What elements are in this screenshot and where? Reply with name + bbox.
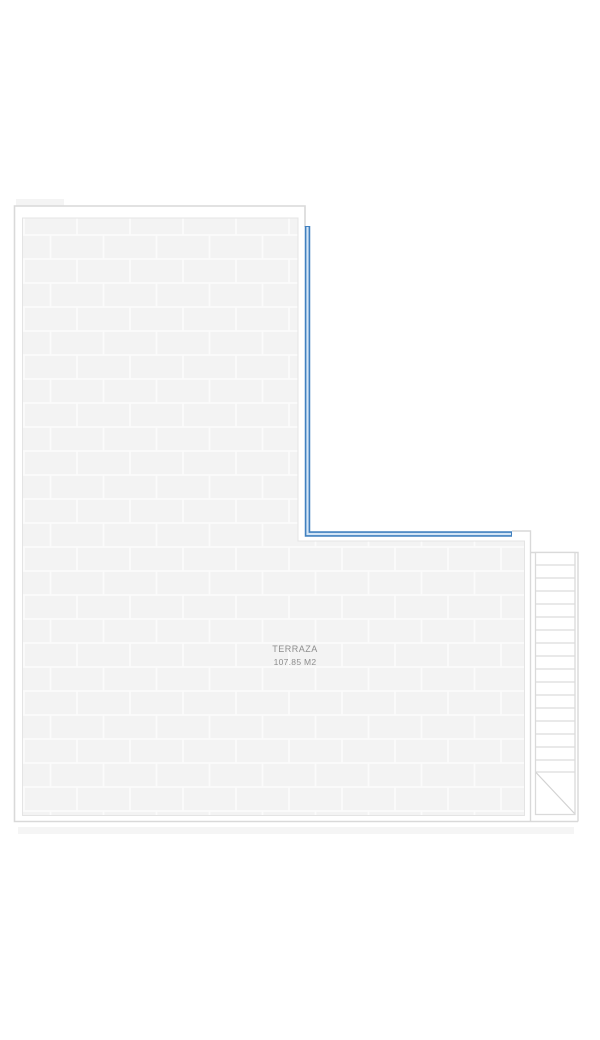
room-name-label: TERRAZA [272, 644, 318, 654]
staircase [536, 553, 576, 815]
floor-plan-canvas: TERRAZA 107.85 M2 [0, 0, 600, 1040]
room-area-label: 107.85 M2 [274, 657, 317, 667]
staircase-outline [536, 553, 576, 815]
print-artifact-top [16, 199, 64, 206]
terrace-floor-area [23, 218, 525, 816]
floor-plan-page: TERRAZA 107.85 M2 [0, 0, 600, 1040]
balustrade-line-outer [308, 226, 513, 534]
print-artifact-bottom [18, 827, 574, 834]
balustrade-line-inner [308, 227, 512, 534]
